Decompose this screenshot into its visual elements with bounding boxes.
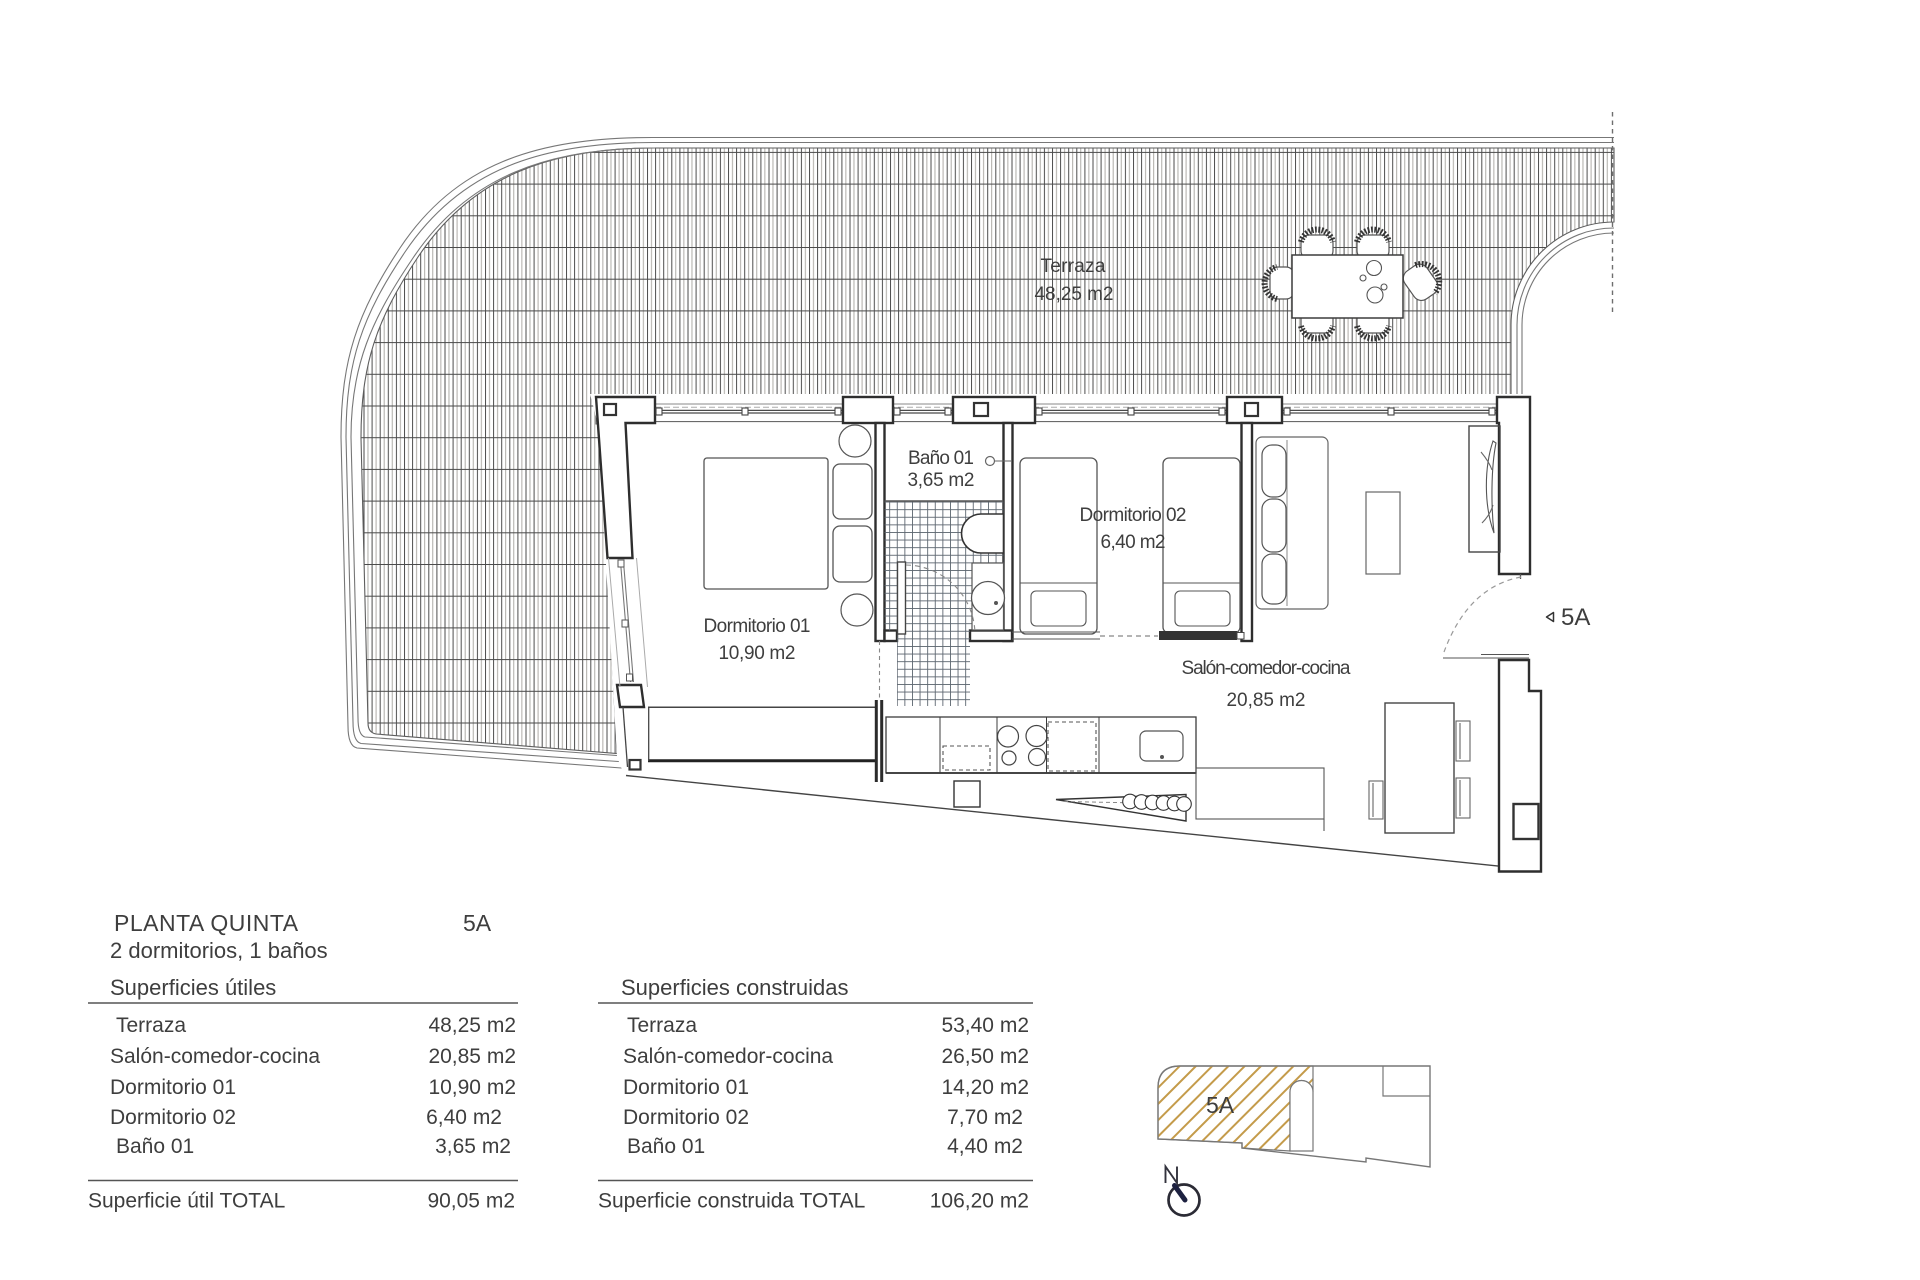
svg-text:26,50 m2: 26,50 m2 [941, 1045, 1029, 1068]
svg-text:Salón-comedor-cocina: Salón-comedor-cocina [110, 1045, 320, 1068]
svg-text:Terraza: Terraza [1041, 256, 1106, 277]
svg-text:Superficies útiles: Superficies útiles [110, 975, 276, 1000]
svg-text:Terraza: Terraza [627, 1014, 697, 1037]
svg-text:53,40 m2: 53,40 m2 [941, 1014, 1029, 1037]
svg-text:7,70 m2: 7,70 m2 [947, 1106, 1023, 1129]
svg-text:20,85 m2: 20,85 m2 [1227, 690, 1306, 711]
svg-text:PLANTA QUINTA: PLANTA QUINTA [114, 910, 299, 936]
svg-text:2 dormitorios, 1 baños: 2 dormitorios, 1 baños [110, 938, 328, 963]
svg-text:Dormitorio 02: Dormitorio 02 [110, 1106, 236, 1129]
svg-text:5A: 5A [463, 910, 492, 936]
svg-text:Dormitorio 01: Dormitorio 01 [704, 616, 811, 637]
svg-text:10,90 m2: 10,90 m2 [719, 643, 796, 664]
svg-text:48,25 m2: 48,25 m2 [1035, 284, 1114, 305]
svg-text:Salón-comedor-cocina: Salón-comedor-cocina [1182, 658, 1351, 679]
svg-text:3,65 m2: 3,65 m2 [435, 1135, 511, 1158]
svg-text:Dormitorio 02: Dormitorio 02 [1080, 505, 1187, 526]
svg-text:Superficie construida TOTAL: Superficie construida TOTAL [598, 1190, 865, 1213]
svg-text:Dormitorio 02: Dormitorio 02 [623, 1106, 749, 1129]
svg-text:14,20 m2: 14,20 m2 [941, 1076, 1029, 1099]
svg-text:5A: 5A [1561, 604, 1590, 631]
svg-text:3,65 m2: 3,65 m2 [908, 470, 975, 491]
svg-text:5A: 5A [1206, 1092, 1235, 1118]
svg-text:Terraza: Terraza [116, 1014, 186, 1037]
svg-text:4,40 m2: 4,40 m2 [947, 1135, 1023, 1158]
svg-text:106,20 m2: 106,20 m2 [930, 1190, 1029, 1213]
svg-text:90,05 m2: 90,05 m2 [427, 1190, 515, 1213]
svg-text:48,25 m2: 48,25 m2 [428, 1014, 516, 1037]
svg-text:Baño 01: Baño 01 [116, 1135, 194, 1158]
svg-text:Dormitorio 01: Dormitorio 01 [110, 1076, 236, 1099]
svg-text:Superficie útil TOTAL: Superficie útil TOTAL [88, 1190, 285, 1213]
svg-text:6,40 m2: 6,40 m2 [426, 1106, 502, 1129]
svg-text:20,85 m2: 20,85 m2 [428, 1045, 516, 1068]
svg-text:Baño 01: Baño 01 [627, 1135, 705, 1158]
svg-text:10,90 m2: 10,90 m2 [428, 1076, 516, 1099]
svg-text:Salón-comedor-cocina: Salón-comedor-cocina [623, 1045, 833, 1068]
svg-text:Dormitorio 01: Dormitorio 01 [623, 1076, 749, 1099]
svg-text:Superficies construidas: Superficies construidas [621, 975, 848, 1000]
svg-text:6,40 m2: 6,40 m2 [1101, 532, 1166, 553]
svg-text:Baño 01: Baño 01 [908, 448, 974, 469]
